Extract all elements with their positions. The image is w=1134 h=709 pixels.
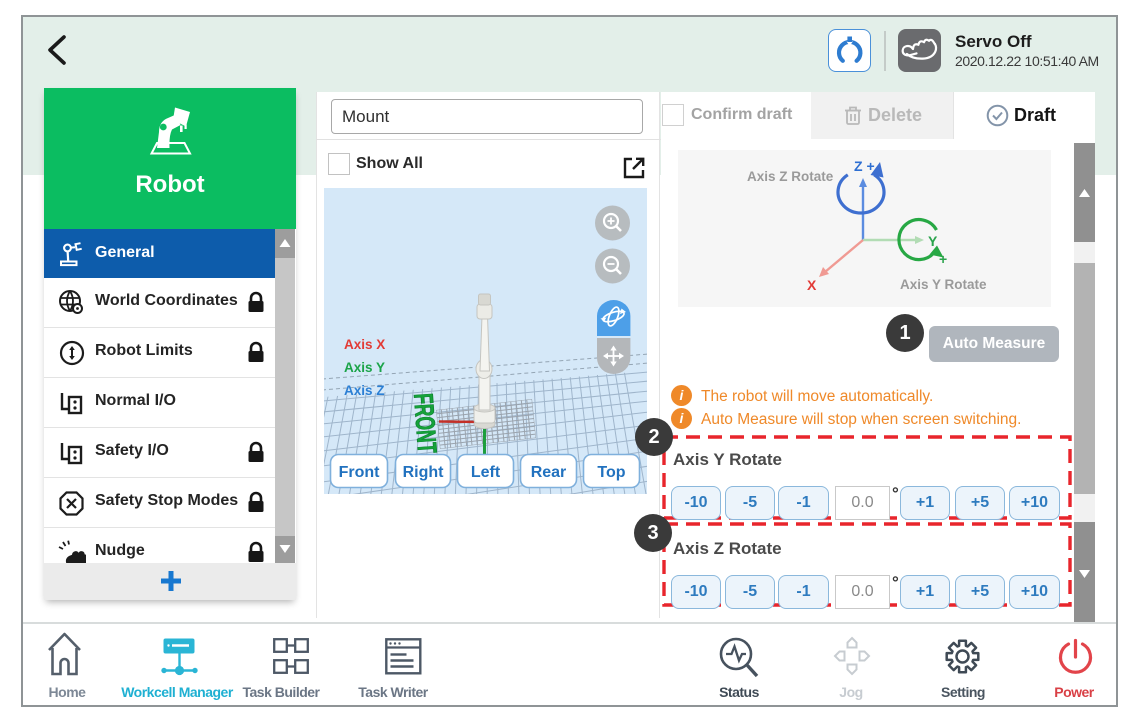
svg-text:Axis X: Axis X [344,337,385,352]
svg-text:Axis Y Rotate: Axis Y Rotate [900,277,987,292]
svg-text:Front: Front [339,464,381,481]
svg-text:FRONT: FRONT [408,392,442,454]
svg-text:Rear: Rear [531,464,567,481]
svg-text:Axis Z Rotate: Axis Z Rotate [747,169,834,184]
svg-text:Left: Left [471,464,501,481]
svg-text:Axis Z: Axis Z [344,383,385,398]
svg-text:X: X [807,277,817,293]
svg-text:Axis Y: Axis Y [344,360,385,375]
svg-text:Right: Right [403,464,445,481]
svg-text:Z +: Z + [854,158,875,174]
svg-text:Top: Top [597,464,625,481]
